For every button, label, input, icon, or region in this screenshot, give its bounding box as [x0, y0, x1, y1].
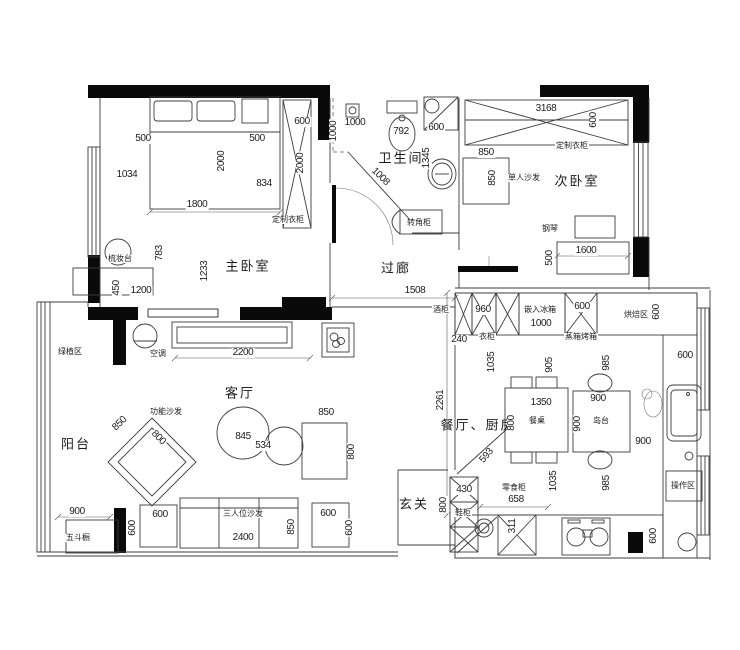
dimension-label: 600 — [589, 111, 599, 129]
dimension-label: 2261 — [436, 389, 446, 412]
furniture-label: 转角柜 — [406, 219, 432, 227]
dimension-label: 2000 — [296, 152, 306, 175]
dimension-label: 985 — [602, 354, 612, 372]
furniture-label: 嵌入冰箱 — [523, 306, 557, 314]
window-balcony-left — [37, 302, 50, 552]
dimension-label: 2400 — [232, 533, 255, 543]
dimension-label: 1350 — [530, 398, 553, 408]
dimension-label: 985 — [602, 474, 612, 492]
dimension-label: 834 — [255, 179, 273, 189]
dimension-label: 1000 — [344, 118, 367, 128]
dimension-label: 600 — [345, 519, 355, 537]
dimension-label: 1200 — [130, 286, 153, 296]
window-kitchen-right-upper — [697, 308, 709, 410]
floor-plan-drawing — [0, 0, 740, 650]
nightstand — [242, 99, 268, 123]
room-label: 次卧室 — [554, 175, 599, 188]
single-sofa — [463, 158, 509, 204]
furniture-label: 定制衣柜 — [555, 142, 589, 150]
dimension-label: 1800 — [186, 200, 209, 210]
room-label: 主卧室 — [225, 260, 270, 273]
dimension-label: 1035 — [487, 351, 497, 374]
furniture-label: 鞋柜 — [454, 509, 472, 517]
dimension-label: 600 — [649, 527, 659, 545]
dimension-label: 240 — [450, 335, 468, 345]
dimension-label: 1000 — [530, 319, 553, 329]
room-label: 玄关 — [399, 498, 429, 511]
furniture-label: 岛台 — [592, 417, 610, 425]
furniture-label: 三人位沙发 — [222, 510, 264, 518]
counter-knob — [685, 452, 693, 460]
dimension-label: 1233 — [200, 260, 210, 283]
stove — [562, 518, 610, 555]
plant-frame — [322, 323, 354, 357]
room-label: 阳台 — [61, 438, 91, 451]
furniture-label: 衣柜 — [478, 333, 496, 341]
dimension-label: 1035 — [549, 470, 559, 493]
furniture-label: 梳妆台 — [107, 255, 133, 263]
furniture-label: 空调 — [149, 350, 167, 358]
dimension-label: 600 — [652, 303, 662, 321]
dimension-label: 900 — [68, 507, 86, 517]
dimension-label: 658 — [507, 495, 525, 505]
dimension-label: 783 — [155, 244, 165, 262]
dimension-label: 600 — [427, 123, 445, 133]
room-label: 客厅 — [225, 387, 255, 400]
window-bedroom2-right — [634, 142, 648, 237]
dimension-label: 500 — [134, 134, 152, 144]
dimension-label: 430 — [455, 485, 473, 495]
window-kitchen-right-lower — [697, 456, 709, 535]
room-label: 过廊 — [381, 262, 411, 275]
furniture-label: 功能沙发 — [149, 408, 183, 416]
dimension-label: 2200 — [232, 348, 255, 358]
dimension-label: 600 — [573, 302, 591, 312]
furniture-label: 五斗橱 — [65, 534, 91, 542]
dimension-label: 3168 — [535, 104, 558, 114]
dimension-label: 1600 — [575, 246, 598, 256]
dimension-label: 600 — [293, 117, 311, 127]
dimension-label: 900 — [573, 415, 583, 433]
dimension-label: 905 — [545, 356, 555, 374]
dimension-label: 600 — [319, 509, 337, 519]
washbasin — [428, 159, 456, 189]
counter-circle — [678, 533, 696, 551]
dimension-label: 1000 — [329, 120, 339, 143]
dimension-label: 1345 — [422, 147, 432, 170]
dimension-label: 500 — [545, 249, 555, 267]
dimension-label: 792 — [392, 127, 410, 137]
dimension-label: 960 — [474, 305, 492, 315]
room-label: 餐厅、厨房 — [440, 419, 515, 432]
furniture-label: 酒柜 — [432, 306, 450, 314]
dimension-label: 600 — [128, 519, 138, 537]
dimension-label: 800 — [439, 496, 449, 514]
window-master-left — [88, 147, 100, 257]
dimension-label: 534 — [254, 441, 272, 451]
dimension-label: 850 — [477, 148, 495, 158]
washer — [346, 104, 359, 117]
dimension-label: 900 — [589, 394, 607, 404]
floor-plan: 卫生间次卧室主卧室过廊客厅阳台餐厅、厨房玄关定制衣柜定制衣柜单人沙发梳妆台转角柜… — [0, 0, 740, 650]
dimension-label: 311 — [508, 518, 518, 535]
dimension-label: 800 — [507, 414, 517, 432]
furniture-label: 烘焙区 — [623, 311, 649, 319]
dimension-label: 845 — [234, 432, 252, 442]
side-table-square — [302, 423, 347, 479]
dimension-label: 800 — [347, 443, 357, 461]
dimension-label: 600 — [151, 510, 169, 520]
dimension-label: 850 — [317, 408, 335, 418]
round-tables — [217, 407, 303, 465]
dimension-label: 1508 — [404, 286, 427, 296]
dimension-label: 900 — [634, 437, 652, 447]
furniture-label: 单人沙发 — [507, 174, 541, 182]
tv-cabinet — [172, 322, 292, 348]
dimension-label: 450 — [112, 279, 122, 297]
dimension-label: 850 — [287, 518, 297, 536]
furniture-label: 餐桌 — [528, 417, 546, 425]
furniture-label: 零食柜 — [501, 484, 527, 492]
furniture-label: 绿植区 — [57, 348, 83, 356]
right-counter-sink — [642, 385, 701, 441]
furniture-label: 定制衣柜 — [271, 216, 305, 224]
dimension-label: 600 — [676, 351, 694, 361]
room-label: 卫生间 — [378, 152, 423, 165]
furniture-label: 蒸箱烤箱 — [564, 333, 598, 341]
bed — [150, 97, 280, 209]
dimension-label: 1034 — [116, 170, 139, 180]
dimension-label: 500 — [248, 134, 266, 144]
dimension-label: 2000 — [217, 150, 227, 173]
furniture-label: 钢琴 — [541, 225, 559, 233]
dimension-label: 850 — [488, 169, 498, 187]
air-conditioner — [133, 324, 157, 348]
furniture-label: 操作区 — [670, 482, 696, 490]
